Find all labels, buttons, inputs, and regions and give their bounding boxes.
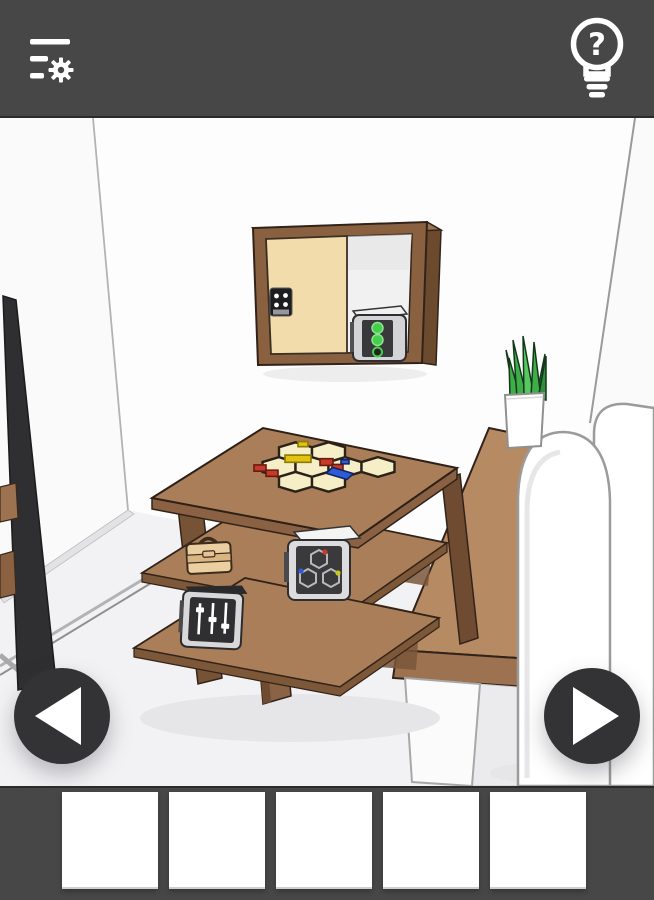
cabinet-door[interactable] xyxy=(266,236,347,354)
yellow-piece xyxy=(285,455,311,462)
blue-piece xyxy=(341,460,349,464)
yellow-piece xyxy=(298,442,308,447)
top-bar: ? xyxy=(0,0,654,118)
wall-cabinet[interactable] xyxy=(253,222,441,365)
nav-right-button[interactable] xyxy=(544,668,640,764)
yellow-dot xyxy=(335,570,340,575)
cabinet-safe[interactable] xyxy=(350,306,407,361)
green-light xyxy=(372,323,383,334)
nav-left-button[interactable] xyxy=(14,668,110,764)
hint-button[interactable]: ? xyxy=(564,16,630,108)
red-piece xyxy=(254,465,266,471)
cabinet-keypad[interactable] xyxy=(270,288,292,316)
question-glyph: ? xyxy=(588,27,606,63)
menu-settings-button[interactable] xyxy=(28,34,100,88)
inventory-slot-5[interactable] xyxy=(490,792,586,889)
red-dot xyxy=(322,549,327,554)
inventory-slot-1[interactable] xyxy=(62,792,158,889)
table-shadow xyxy=(140,694,440,742)
red-piece xyxy=(320,459,333,466)
gear-icon xyxy=(49,58,74,83)
inventory-slot-4[interactable] xyxy=(383,792,479,889)
briefcase[interactable] xyxy=(186,537,232,574)
inventory-slot-2[interactable] xyxy=(169,792,265,889)
plant-pot xyxy=(505,393,544,448)
blue-dot xyxy=(298,568,303,573)
arrow-right-icon xyxy=(573,687,619,745)
menu-settings-icon xyxy=(28,34,100,88)
arrow-left-icon xyxy=(35,687,81,745)
game-screen: ? xyxy=(0,0,654,900)
lightbulb-question-icon: ? xyxy=(564,16,630,108)
slider-device[interactable] xyxy=(178,582,248,649)
cabinet-shadow xyxy=(263,366,427,382)
red-piece xyxy=(266,470,278,476)
inventory-slot-3[interactable] xyxy=(276,792,372,889)
inventory-bar xyxy=(0,786,654,900)
green-light xyxy=(372,335,383,346)
dark-light xyxy=(373,348,382,357)
